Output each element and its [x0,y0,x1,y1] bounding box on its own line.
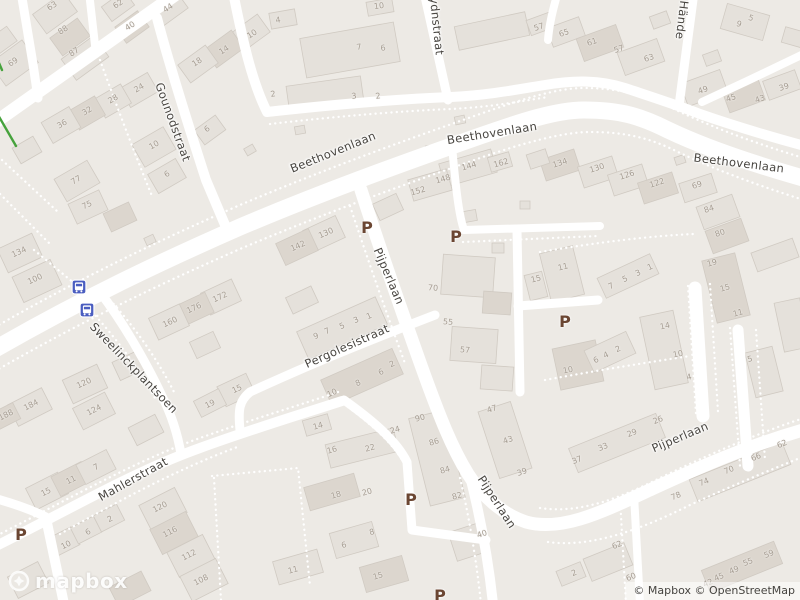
house-number: 116 [161,525,179,540]
house-number: 10 [147,139,160,152]
parking-icon: P [405,492,417,508]
parking-icon: P [559,314,571,330]
street-label: Beethovenlaan [693,150,785,175]
house-number: 10 [59,539,72,552]
house-number: 20 [361,486,373,497]
house-number: 160 [161,315,179,330]
house-number: 33 [597,441,610,453]
house-number: 18 [330,489,342,500]
house-number: 148 [434,173,451,186]
map-attribution[interactable]: © Mapbox © OpenStreetMap [625,582,800,600]
house-number: 62 [611,539,624,551]
house-number: 2 [570,568,578,578]
house-number: 29 [626,427,639,439]
mapbox-logo[interactable]: mapbox [7,569,128,593]
house-number: 28 [106,93,119,106]
house-number: 69 [691,179,703,191]
house-number: 5 [338,321,346,331]
house-number: 77 [69,174,82,187]
street-label: Mahlerstraat [96,454,170,504]
street-label: Pijperlaan [371,246,407,307]
house-number: 15 [39,486,52,499]
house-number: 62 [111,0,124,11]
street-label: Sweelinckplantsoen [87,320,181,416]
house-number: 152 [409,185,426,198]
house-number: 1 [646,262,654,272]
house-number: 36 [55,118,68,131]
street-label: Hände [673,0,692,40]
house-number: 3 [634,268,642,278]
house-number: 108 [192,573,210,588]
house-number: 7 [607,281,615,291]
house-number: 130 [317,226,335,240]
house-number: 6 [202,124,211,134]
house-number: 5 [747,13,754,23]
bus-stop-icon [72,280,87,295]
house-number: 8 [354,378,362,388]
house-number: 22 [364,442,376,453]
house-number: 39 [516,466,528,478]
house-number: 80 [714,227,726,239]
house-number: 75 [80,199,93,211]
house-number: 59 [763,548,776,560]
house-number: 82 [451,490,463,501]
house-number: 112 [180,548,198,563]
house-number: 39 [778,81,790,93]
house-number: 8 [368,527,375,537]
house-number: 7 [323,326,331,336]
street-label: Beethovenlaan [446,119,538,147]
house-number: 11 [287,564,299,575]
parking-icon: P [434,588,446,600]
house-number: 14 [312,420,324,431]
house-number: 90 [414,412,426,423]
house-number: 70 [428,283,439,293]
house-number: 176 [185,301,203,316]
house-number: 11 [732,307,744,318]
house-number: 74 [698,476,711,488]
house-number: 44 [161,1,174,14]
house-number: 4 [602,350,610,360]
house-number: 10 [373,1,384,11]
house-number: 57 [460,345,471,355]
house-number: 6 [380,43,386,53]
house-number: 142 [289,239,307,253]
street-label: Pijperlaan [475,473,520,531]
house-number: 66 [750,451,763,463]
house-number: 37 [571,454,584,466]
house-number: 2 [375,91,381,101]
house-number: 49 [697,84,709,96]
house-number: 57 [533,21,545,33]
house-number: 43 [502,434,514,446]
house-number: 5 [621,274,629,284]
house-number: 47 [486,403,498,415]
house-number: 45 [725,92,737,104]
bus-stop-icon [80,303,95,318]
house-number: 24 [389,424,401,435]
parking-icon: P [361,220,373,236]
house-number: 49 [728,564,741,576]
house-number: 63 [643,52,655,64]
house-number: 10 [326,387,339,399]
house-number: 40 [123,19,136,32]
house-number: 86 [428,436,440,447]
mapbox-logo-text: mapbox [35,569,128,593]
parking-icon: P [15,527,27,543]
mapbox-logo-icon [7,569,31,593]
house-number: 87 [67,45,80,58]
house-number: 15 [372,570,384,581]
house-number: 9 [735,19,742,29]
house-number: 65 [558,27,570,39]
map-label-layer: 6362448887406910141862428323610677104762… [0,0,800,600]
house-number: 122 [648,176,665,189]
house-number: 130 [588,161,605,174]
house-number: 100 [26,272,44,287]
house-number: 6 [377,367,385,377]
house-number: 2 [106,514,115,524]
house-number: 62 [776,438,789,450]
house-number: 124 [85,403,103,418]
house-number: 3 [351,91,357,101]
house-number: 120 [75,376,93,391]
house-number: 10 [245,27,258,40]
house-number: 6 [163,169,172,179]
street-label: Gounodstraat [152,81,194,164]
house-number: 9 [312,331,320,341]
house-number: 6 [592,355,600,365]
house-number: 88 [56,23,69,36]
house-number: 162 [492,157,509,170]
house-number: 84 [439,464,451,475]
house-number: 134 [10,245,28,260]
house-number: 6 [84,527,93,537]
house-number: 55 [742,556,755,568]
house-number: 19 [706,257,718,268]
house-number: 172 [211,290,229,305]
house-number: 78 [670,490,683,502]
house-number: 120 [151,500,169,515]
house-number: 2 [270,89,276,99]
house-number: 126 [618,168,635,181]
house-number: 32 [80,105,93,118]
house-number: 10 [562,365,574,376]
house-number: 3 [352,315,360,325]
house-number: 24 [132,82,145,95]
house-number: 55 [443,317,454,327]
house-number: 188 [0,408,15,423]
street-label: Pergolesistraat [303,321,392,371]
house-number: 15 [230,383,243,395]
house-number: 4 [686,372,693,382]
house-number: 61 [586,36,598,48]
house-number: 84 [703,203,715,215]
house-number: 2 [614,344,622,354]
house-number: 10 [672,349,684,360]
house-number: 14 [217,43,230,56]
house-number: 15 [719,282,731,293]
house-number: 70 [723,464,736,476]
house-number: 6 [340,540,347,550]
house-number: 43 [754,93,766,105]
house-number: 57 [613,43,625,55]
house-number: 26 [652,414,665,426]
house-number: 4 [275,15,281,25]
house-number: 69 [6,55,19,68]
house-number: 63 [45,0,58,13]
house-number: 16 [326,444,338,455]
house-number: 134 [551,156,568,169]
parking-icon: P [450,229,462,245]
house-number: 14 [659,321,671,332]
house-number: 2 [388,359,396,369]
house-number: 40 [476,528,488,540]
house-number: 15 [530,273,542,284]
house-number: 7 [92,462,101,472]
house-number: 7 [356,42,362,52]
street-label: Beethovenlaan [288,128,378,175]
map-canvas[interactable]: 6362448887406910141862428323610677104762… [0,0,800,600]
house-number: 18 [190,55,203,68]
house-number: 11 [557,261,569,272]
house-number: 1 [365,311,373,321]
house-number: 19 [203,398,216,411]
house-number: 184 [22,398,40,413]
house-number: 144 [460,160,477,173]
street-label: Haydnstraat [425,0,447,56]
house-number: 11 [64,474,77,487]
house-number: 5 [746,354,753,364]
